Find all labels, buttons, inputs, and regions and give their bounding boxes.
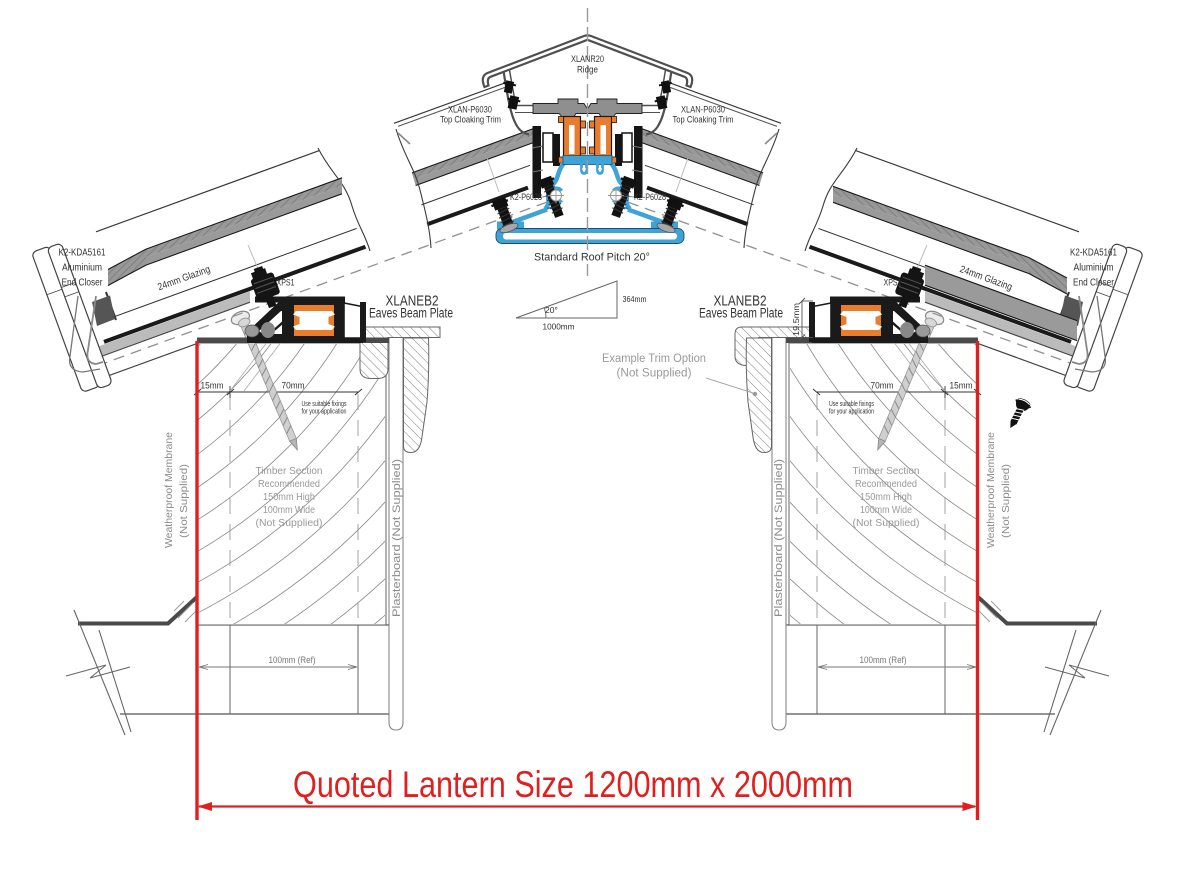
svg-text:End Closer: End Closer — [1073, 278, 1115, 289]
svg-text:15mm: 15mm — [201, 381, 224, 391]
svg-text:K2-KDA5161: K2-KDA5161 — [1070, 248, 1117, 259]
svg-text:Top Cloaking Trim: Top Cloaking Trim — [440, 115, 501, 125]
svg-text:End Closer: End Closer — [62, 278, 104, 289]
svg-text:(Not Supplied): (Not Supplied) — [617, 368, 692, 380]
svg-text:XLAN-P6030: XLAN-P6030 — [448, 105, 492, 115]
svg-text:150mm High: 150mm High — [860, 491, 912, 503]
svg-text:K2-P6028: K2-P6028 — [510, 192, 542, 202]
svg-text:K2-KDA5161: K2-KDA5161 — [59, 248, 106, 259]
svg-text:Top Cloaking Trim: Top Cloaking Trim — [673, 115, 734, 125]
svg-text:15mm: 15mm — [950, 381, 973, 391]
svg-text:(Not Supplied): (Not Supplied) — [1000, 464, 1012, 538]
svg-text:Eaves Beam Plate: Eaves Beam Plate — [369, 306, 453, 321]
svg-text:100mm (Ref): 100mm (Ref) — [269, 655, 316, 665]
svg-text:Recommended: Recommended — [258, 478, 320, 490]
svg-text:XLANR20: XLANR20 — [571, 54, 604, 65]
svg-text:XPS1: XPS1 — [884, 278, 902, 288]
svg-text:150mm High: 150mm High — [263, 491, 315, 503]
svg-text:70mm: 70mm — [871, 381, 894, 391]
svg-text:(Not Supplied): (Not Supplied) — [178, 464, 190, 538]
svg-text:Ridge: Ridge — [577, 65, 598, 76]
svg-text:Recommended: Recommended — [855, 478, 917, 490]
svg-text:Timber Section: Timber Section — [256, 465, 323, 477]
svg-text:XLAN-P6030: XLAN-P6030 — [681, 105, 725, 115]
svg-text:(Not Supplied): (Not Supplied) — [256, 517, 323, 529]
svg-text:Eaves Beam Plate: Eaves Beam Plate — [699, 306, 783, 321]
svg-text:100mm (Ref): 100mm (Ref) — [860, 655, 907, 665]
svg-text:1000mm: 1000mm — [543, 322, 575, 332]
svg-text:(Not Supplied): (Not Supplied) — [853, 517, 920, 529]
svg-text:for your application: for your application — [829, 407, 874, 416]
svg-text:Weatherproof Membrane: Weatherproof Membrane — [985, 432, 997, 548]
svg-text:100mm Wide: 100mm Wide — [860, 504, 912, 516]
svg-text:100mm Wide: 100mm Wide — [263, 504, 315, 516]
svg-text:for your application: for your application — [302, 407, 347, 416]
svg-text:Plasterboard (Not Supplied): Plasterboard (Not Supplied) — [391, 459, 403, 617]
svg-text:Plasterboard (Not Supplied): Plasterboard (Not Supplied) — [773, 459, 785, 617]
svg-text:K2-P6028: K2-P6028 — [634, 192, 666, 202]
svg-text:Aluminium: Aluminium — [62, 263, 102, 274]
svg-text:19.5mm: 19.5mm — [791, 303, 801, 336]
svg-text:Quoted Lantern Size 1200mm x 2: Quoted Lantern Size 1200mm x 2000mm — [293, 764, 853, 805]
svg-text:Weatherproof Membrane: Weatherproof Membrane — [163, 432, 175, 548]
svg-text:Standard Roof Pitch 20°: Standard Roof Pitch 20° — [534, 252, 650, 264]
svg-text:70mm: 70mm — [282, 381, 305, 391]
svg-text:20°: 20° — [545, 306, 558, 315]
svg-text:XPS1: XPS1 — [277, 278, 295, 288]
svg-text:364mm: 364mm — [623, 294, 647, 304]
svg-text:Timber Section: Timber Section — [853, 465, 920, 477]
svg-text:Aluminium: Aluminium — [1074, 263, 1114, 274]
svg-text:Example Trim Option: Example Trim Option — [602, 353, 706, 365]
